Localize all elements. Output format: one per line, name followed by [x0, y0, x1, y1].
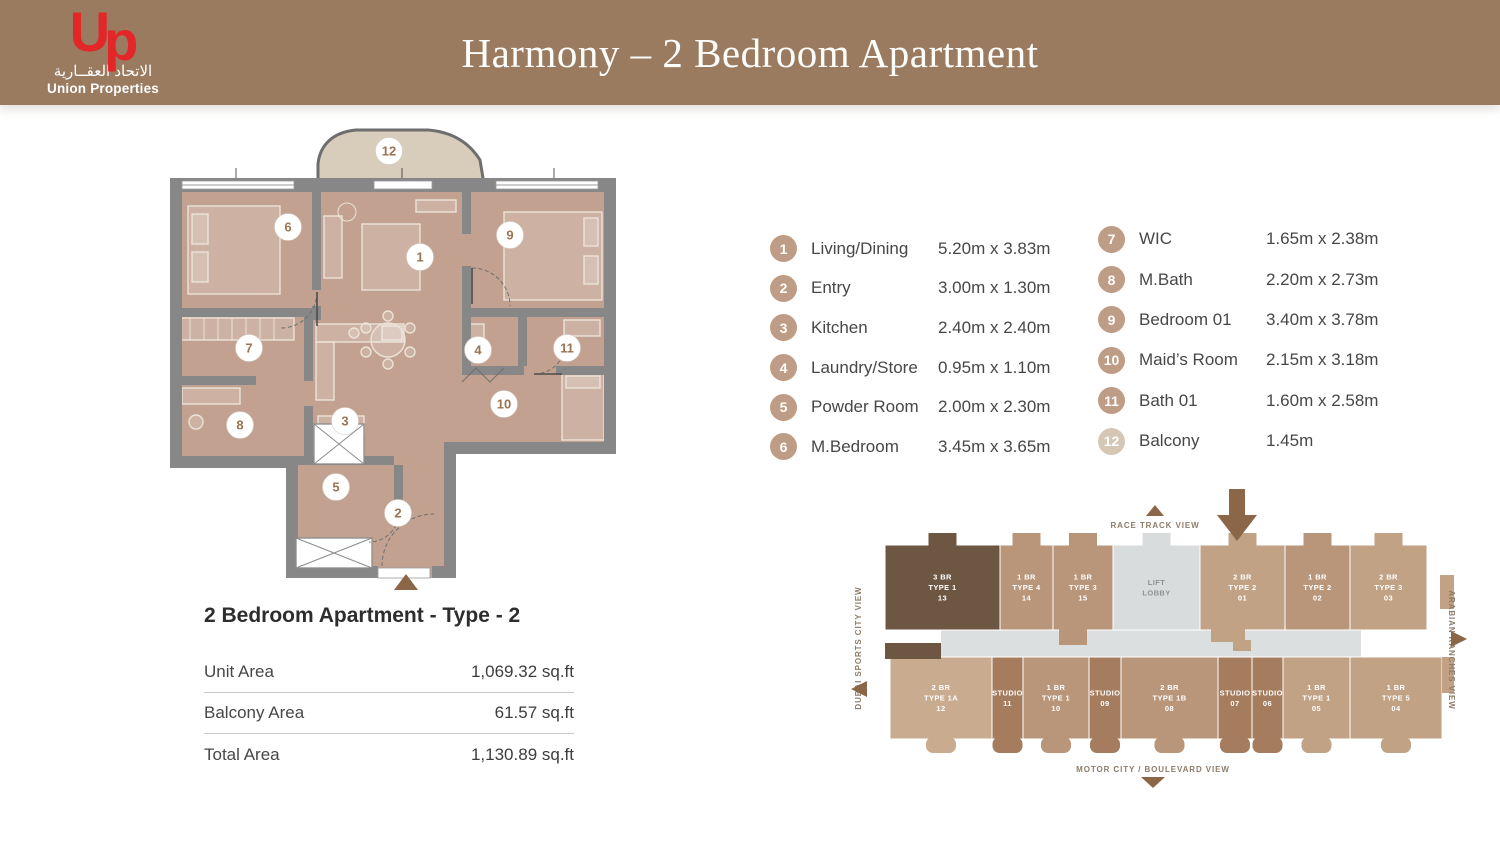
legend-item-label: Bath 01: [1139, 391, 1266, 411]
svg-text:9: 9: [506, 228, 513, 243]
legend-item-dimensions: 0.95m x 1.10m: [938, 358, 1050, 378]
legend-item: 5Powder Room2.00m x 2.30m: [770, 387, 1050, 427]
room-marker: 3: [332, 408, 359, 435]
legend-item-number-badge: 5: [770, 394, 797, 421]
room-marker: 12: [376, 138, 403, 165]
svg-text:5: 5: [332, 480, 339, 495]
key-plan-unit: STUDIO11: [992, 657, 1023, 753]
legend-item-dimensions: 3.00m x 1.30m: [938, 278, 1050, 298]
svg-text:11: 11: [560, 341, 574, 356]
legend-item: 8M.Bath2.20m x 2.73m: [1098, 259, 1378, 299]
key-plan-unit-label: 2 BR: [1379, 573, 1398, 582]
area-row-label: Balcony Area: [204, 703, 304, 723]
key-plan-unit-label: 1 BR: [1307, 683, 1326, 692]
key-plan-unit-label: 1 BR: [1074, 573, 1093, 582]
area-row-label: Unit Area: [204, 662, 274, 682]
legend-item: 10Maid’s Room2.15m x 3.18m: [1098, 340, 1378, 380]
legend-item-number-badge: 3: [770, 314, 797, 341]
svg-text:4: 4: [474, 343, 482, 358]
up-logo-mark: Up: [36, 4, 170, 60]
key-plan-unit: STUDIO09: [1089, 657, 1121, 753]
key-plan-unit-label: LIFT: [1148, 578, 1165, 587]
key-plan-unit-label: 14: [1022, 594, 1032, 603]
area-row-value: 61.57 sq.ft: [495, 703, 574, 723]
legend-item-number-badge: 2: [770, 275, 797, 302]
legend-item-dimensions: 1.60m x 2.58m: [1266, 391, 1378, 411]
svg-text:2: 2: [394, 506, 401, 521]
room-marker: 5: [323, 474, 350, 501]
key-plan-unit: STUDIO07: [1218, 657, 1252, 753]
legend-item: 1Living/Dining5.20m x 3.83m: [770, 229, 1050, 269]
key-plan-unit-label: TYPE 1A: [924, 694, 958, 703]
legend-column-1: 1Living/Dining5.20m x 3.83m2Entry3.00m x…: [770, 229, 1050, 467]
key-plan-unit-label: 15: [1078, 594, 1087, 603]
key-plan-unit-label: TYPE 3: [1069, 583, 1097, 592]
key-plan-unit-label: TYPE 2: [1303, 583, 1331, 592]
race-track-view-arrow-icon: [1146, 505, 1164, 516]
legend-item-number-badge: 9: [1098, 306, 1125, 333]
key-plan-unit: 2 BRTYPE 1A12: [890, 657, 992, 753]
legend-item-label: Maid’s Room: [1139, 350, 1266, 370]
key-plan-unit-label: TYPE 1B: [1152, 694, 1186, 703]
key-plan-unit-label: 1 BR: [1047, 683, 1066, 692]
key-plan-unit-label: 13: [938, 594, 947, 603]
room-marker: 7: [236, 335, 263, 362]
key-plan-unit: 2 BRTYPE 303: [1350, 533, 1427, 630]
legend-item-label: Kitchen: [811, 318, 938, 338]
key-plan-unit-label: 03: [1384, 594, 1393, 603]
legend-item-dimensions: 2.20m x 2.73m: [1266, 270, 1378, 290]
legend-item-number-badge: 7: [1098, 226, 1125, 253]
svg-text:7: 7: [245, 341, 252, 356]
arabian-ranches-view-label: ARABIAN RANCHES VIEW: [1447, 590, 1456, 709]
legend-item-number-badge: 4: [770, 354, 797, 381]
room-marker: 8: [227, 412, 254, 439]
area-row-label: Total Area: [204, 745, 280, 765]
room-marker: 11: [554, 335, 581, 362]
legend-item-label: Living/Dining: [811, 239, 938, 259]
key-plan-unit: 1 BRTYPE 105: [1283, 657, 1350, 753]
area-rows: Unit Area1,069.32 sq.ftBalcony Area61.57…: [204, 652, 574, 775]
legend-item-dimensions: 5.20m x 3.83m: [938, 239, 1050, 259]
svg-text:6: 6: [284, 220, 291, 235]
legend-item-dimensions: 2.00m x 2.30m: [938, 397, 1050, 417]
key-plan-unit-label: 1 BR: [1387, 683, 1406, 692]
legend-item-number-badge: 10: [1098, 347, 1125, 374]
legend-item-label: M.Bath: [1139, 270, 1266, 290]
key-plan-unit-label: STUDIO: [1220, 688, 1251, 697]
legend-item: 3Kitchen2.40m x 2.40m: [770, 308, 1050, 348]
legend-item-number-badge: 1: [770, 235, 797, 262]
legend-item-label: M.Bedroom: [811, 437, 938, 457]
key-plan-unit: 1 BRTYPE 315: [1053, 533, 1113, 630]
legend-item: 12Balcony1.45m: [1098, 421, 1378, 461]
union-properties-logo: Up الاتحاد العقــارية Union Properties: [36, 4, 170, 96]
floor-plan: 123456789101112: [166, 120, 618, 594]
key-plan-unit: 1 BRTYPE 504: [1350, 657, 1442, 753]
key-plan-unit-label: TYPE 4: [1012, 583, 1041, 592]
key-plan-unit-label: 04: [1391, 704, 1401, 713]
page-title: Harmony – 2 Bedroom Apartment: [0, 0, 1500, 105]
legend-item-label: Balcony: [1139, 431, 1266, 451]
key-plan-unit-label: 12: [936, 704, 945, 713]
room-marker: 9: [497, 222, 524, 249]
key-plan-unit: 3 BRTYPE 113: [885, 533, 1000, 630]
key-plan-unit-label: LOBBY: [1142, 588, 1170, 597]
key-plan-unit: STUDIO06: [1252, 657, 1283, 753]
area-row: Unit Area1,069.32 sq.ft: [204, 652, 574, 693]
key-plan-unit: LIFTLOBBY: [1113, 533, 1200, 630]
key-plan-unit-label: 1 BR: [1017, 573, 1036, 582]
room-marker: 6: [275, 214, 302, 241]
key-plan-unit-label: 02: [1313, 594, 1322, 603]
motor-city-view-label: MOTOR CITY / BOULEVARD VIEW: [1076, 765, 1230, 774]
legend-item-dimensions: 3.45m x 3.65m: [938, 437, 1050, 457]
key-plan-unit-label: 09: [1100, 699, 1109, 708]
legend-item: 9Bedroom 013.40m x 3.78m: [1098, 300, 1378, 340]
area-row-value: 1,069.32 sq.ft: [471, 662, 574, 682]
legend-item-label: Powder Room: [811, 397, 938, 417]
header-bar: Harmony – 2 Bedroom Apartment Up الاتحاد…: [0, 0, 1500, 105]
legend-item-number-badge: 8: [1098, 266, 1125, 293]
legend-item-label: Bedroom 01: [1139, 310, 1266, 330]
unit-type-title: 2 Bedroom Apartment - Type - 2: [204, 604, 574, 628]
svg-text:10: 10: [497, 397, 511, 412]
key-plan-unit-label: 06: [1263, 699, 1272, 708]
key-plan-unit: 1 BRTYPE 414: [1000, 533, 1053, 630]
key-plan-unit-label: TYPE 1: [1302, 694, 1330, 703]
key-plan-unit-label: TYPE 2: [1228, 583, 1256, 592]
key-plan-unit-label: TYPE 5: [1382, 694, 1410, 703]
key-plan-unit-label: TYPE 3: [1374, 583, 1402, 592]
key-plan-unit-label: 01: [1238, 594, 1247, 603]
key-plan-unit-label: 05: [1312, 704, 1321, 713]
legend-item-dimensions: 2.40m x 2.40m: [938, 318, 1050, 338]
room-marker: 1: [407, 244, 434, 271]
room-marker: 4: [465, 337, 492, 364]
area-row: Balcony Area61.57 sq.ft: [204, 693, 574, 734]
legend-item: 4Laundry/Store0.95m x 1.10m: [770, 348, 1050, 388]
legend-item-dimensions: 1.45m: [1266, 431, 1313, 451]
legend-item-number-badge: 12: [1098, 428, 1125, 455]
legend-item-label: Laundry/Store: [811, 358, 938, 378]
key-plan-unit-label: 3 BR: [933, 573, 952, 582]
key-plan-unit-label: 08: [1165, 704, 1174, 713]
key-plan-unit-label: STUDIO: [1252, 688, 1283, 697]
legend-item-dimensions: 1.65m x 2.38m: [1266, 229, 1378, 249]
logo-company-name: Union Properties: [36, 82, 170, 96]
logo-arabic-text: الاتحاد العقــارية: [36, 64, 170, 79]
key-plan: 3 BRTYPE 1131 BRTYPE 4141 BRTYPE 315LIFT…: [845, 485, 1485, 825]
legend-item-dimensions: 2.15m x 3.18m: [1266, 350, 1378, 370]
key-plan-unit-label: 1 BR: [1308, 573, 1327, 582]
brochure-page: Harmony – 2 Bedroom Apartment Up الاتحاد…: [0, 0, 1500, 844]
motor-city-view-arrow-icon: [1141, 777, 1165, 788]
legend-item-label: WIC: [1139, 229, 1266, 249]
area-row-value: 1,130.89 sq.ft: [471, 745, 574, 765]
svg-text:1: 1: [416, 250, 423, 265]
legend-item: 2Entry3.00m x 1.30m: [770, 269, 1050, 309]
key-plan-unit: 2 BRTYPE 201: [1200, 533, 1285, 630]
area-row: Total Area1,130.89 sq.ft: [204, 734, 574, 775]
key-plan-unit-label: 2 BR: [1233, 573, 1252, 582]
key-plan-courtyard: [941, 628, 1361, 657]
room-marker: 2: [385, 500, 412, 527]
legend-item: 6M.Bedroom3.45m x 3.65m: [770, 427, 1050, 467]
svg-text:3: 3: [341, 414, 348, 429]
key-plan-unit-label: TYPE 1: [928, 583, 956, 592]
legend-item: 11Bath 011.60m x 2.58m: [1098, 381, 1378, 421]
legend-item-label: Entry: [811, 278, 938, 298]
unit-area-table: 2 Bedroom Apartment - Type - 2 Unit Area…: [204, 604, 574, 775]
key-plan-unit-label: TYPE 1: [1042, 694, 1070, 703]
svg-text:8: 8: [236, 418, 243, 433]
key-plan-unit-label: 10: [1051, 704, 1060, 713]
svg-text:12: 12: [382, 144, 396, 159]
legend-column-2: 7WIC1.65m x 2.38m8M.Bath2.20m x 2.73m9Be…: [1098, 219, 1378, 461]
key-plan-unit-label: 11: [1003, 699, 1012, 708]
legend-item-number-badge: 11: [1098, 387, 1125, 414]
key-plan-unit: 2 BRTYPE 1B08: [1121, 657, 1218, 753]
key-plan-unit-label: STUDIO: [1090, 688, 1121, 697]
key-plan-unit-label: 07: [1230, 699, 1239, 708]
key-plan-unit: 1 BRTYPE 202: [1285, 533, 1350, 630]
legend-item-dimensions: 3.40m x 3.78m: [1266, 310, 1378, 330]
race-track-view-label: RACE TRACK VIEW: [1110, 521, 1199, 530]
key-plan-unit: 1 BRTYPE 110: [1023, 657, 1089, 753]
key-plan-unit-label: STUDIO: [992, 688, 1023, 697]
legend-item: 7WIC1.65m x 2.38m: [1098, 219, 1378, 259]
key-plan-unit-label: 2 BR: [1160, 683, 1179, 692]
room-marker: 10: [491, 391, 518, 418]
arabian-ranches-view-arrow-icon: [1451, 631, 1467, 647]
key-plan-unit-label: 2 BR: [932, 683, 951, 692]
legend-item-number-badge: 6: [770, 433, 797, 460]
